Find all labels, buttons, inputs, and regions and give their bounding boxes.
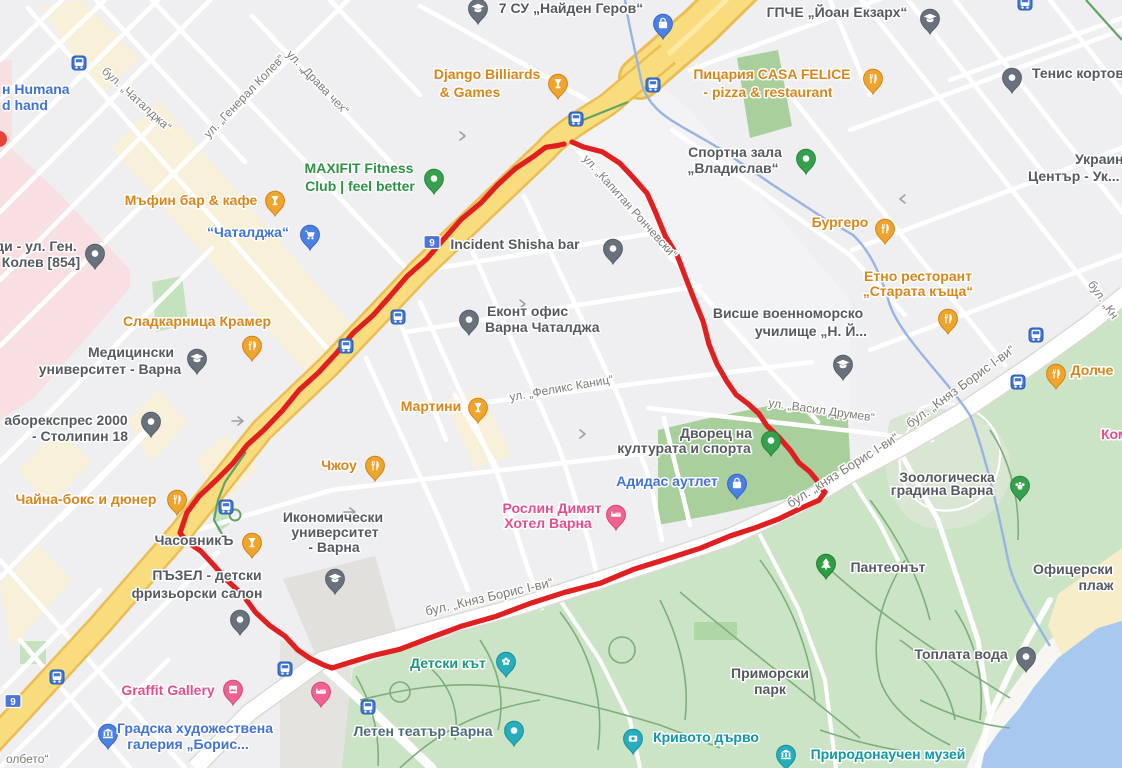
svg-text:9: 9 [429, 238, 435, 249]
svg-text:Приморски: Приморски [731, 665, 809, 681]
svg-text:Летен театър Варна: Летен театър Варна [353, 723, 492, 739]
svg-text:Адидас аутлет: Адидас аутлет [616, 473, 718, 489]
svg-text:MAXIFIT Fitness: MAXIFIT Fitness [305, 160, 414, 176]
svg-text:Ком...: Ком... [1101, 426, 1122, 442]
svg-text:Колев [854]: Колев [854] [2, 254, 80, 270]
svg-text:d hand: d hand [2, 97, 48, 113]
svg-text:университет - Варна: университет - Варна [39, 361, 182, 377]
svg-text:Медицински: Медицински [88, 344, 174, 360]
svg-text:Център - Ук...: Център - Ук... [1028, 168, 1120, 184]
svg-text:Дворец на: Дворец на [680, 425, 752, 441]
svg-text:Сладкарница Крамер: Сладкарница Крамер [123, 313, 271, 329]
svg-text:Спортна зала: Спортна зала [688, 144, 782, 160]
svg-text:Бургеро: Бургеро [812, 214, 869, 230]
svg-text:Хотел Варна: Хотел Варна [504, 515, 592, 531]
svg-text:Рослин Димят: Рослин Димят [503, 500, 602, 516]
svg-text:7 СУ „Найден Геров“: 7 СУ „Найден Геров“ [499, 0, 643, 16]
svg-text:Graffit Gallery: Graffit Gallery [121, 682, 215, 698]
svg-text:Мъфин бар & кафе: Мъфин бар & кафе [125, 192, 258, 208]
svg-text:културата и спорта: културата и спорта [617, 440, 751, 456]
svg-text:Долче: Долче [1071, 362, 1114, 378]
svg-text:Варна Чаталджа: Варна Чаталджа [485, 319, 600, 335]
svg-text:градина Варна: градина Варна [891, 482, 994, 498]
svg-text:Мартини: Мартини [401, 398, 462, 414]
svg-text:Природонаучен музей: Природонаучен музей [811, 746, 966, 762]
svg-text:„Старата къща“: „Старата къща“ [863, 283, 974, 299]
svg-text:н Humana: н Humana [2, 81, 70, 97]
svg-text:Детски кът: Детски кът [410, 655, 486, 671]
svg-text:олбето“: олбето“ [6, 752, 48, 766]
svg-text:Чжоу: Чжоу [321, 457, 357, 473]
svg-text:аборекспрес 2000: аборекспрес 2000 [4, 412, 128, 428]
svg-text:галерия „Борис...: галерия „Борис... [127, 736, 249, 752]
svg-text:Django Billiards: Django Billiards [434, 66, 541, 82]
svg-text:Офицерски: Офицерски [1033, 561, 1113, 577]
svg-text:- Столипин 18: - Столипин 18 [32, 428, 128, 444]
svg-text:ЧасовникЪ: ЧасовникЪ [155, 532, 234, 548]
svg-text:Висше военноморско: Висше военноморско [713, 305, 863, 321]
svg-text:Club | feel better: Club | feel better [305, 178, 415, 194]
svg-text:Чайна-бокс и дюнер: Чайна-бокс и дюнер [16, 491, 157, 507]
svg-text:- pizza & restaurant: - pizza & restaurant [703, 84, 832, 100]
svg-text:9: 9 [10, 697, 16, 708]
svg-text:парк: парк [754, 681, 787, 697]
svg-text:Тенис кортов...: Тенис кортов... [1032, 65, 1122, 81]
svg-text:- Варна: - Варна [308, 539, 359, 555]
svg-text:Украин...: Украин... [1075, 151, 1122, 167]
svg-text:Пантеонът: Пантеонът [850, 559, 925, 575]
svg-text:Топлата вода: Топлата вода [914, 646, 1008, 662]
svg-text:“Чаталджа“: “Чаталджа“ [207, 224, 289, 240]
svg-text:Incident Shisha bar: Incident Shisha bar [450, 236, 580, 252]
svg-text:Икономически: Икономически [283, 509, 383, 525]
svg-text:Еконт офис: Еконт офис [487, 303, 568, 319]
svg-text:„Владислав“: „Владислав“ [687, 160, 778, 176]
svg-text:& Games: & Games [440, 84, 501, 100]
svg-text:училище „Н. Й...: училище „Н. Й... [755, 322, 867, 339]
svg-text:Етно ресторант: Етно ресторант [864, 268, 972, 284]
svg-text:ди - ул. Ген.: ди - ул. Ген. [0, 238, 77, 254]
svg-text:плаж: плаж [1078, 577, 1114, 593]
svg-text:ПЪЗЕЛ - детски: ПЪЗЕЛ - детски [152, 567, 261, 583]
svg-text:Градска художествена: Градска художествена [117, 720, 273, 736]
svg-text:Кривото дърво: Кривото дърво [653, 729, 759, 745]
svg-text:университет: университет [291, 524, 378, 540]
svg-text:ГПЧЕ „Йоан Екзарх“: ГПЧЕ „Йоан Екзарх“ [767, 3, 908, 20]
svg-text:фризьорски салон: фризьорски салон [132, 585, 263, 601]
svg-text:Пицария CASA FELICE: Пицария CASA FELICE [693, 66, 850, 82]
